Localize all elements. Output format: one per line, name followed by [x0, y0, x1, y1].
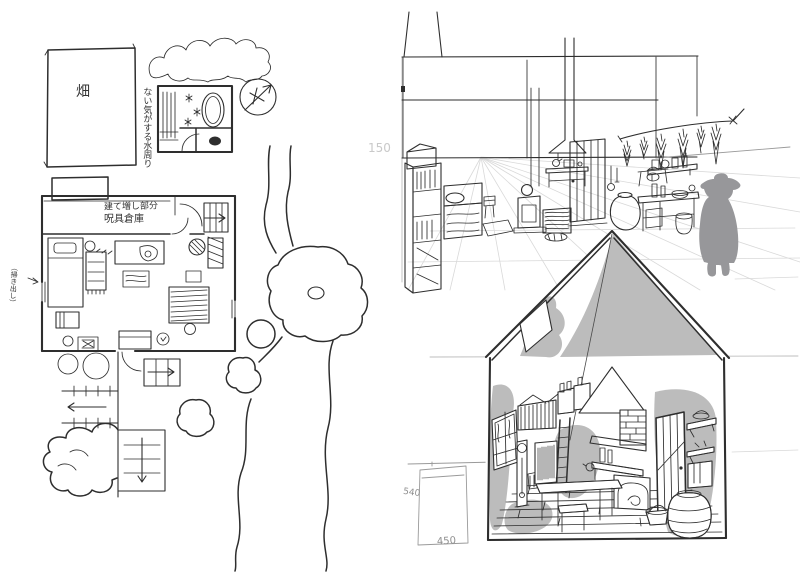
- furniture: [48, 237, 223, 351]
- sketch-page: 畑 ない気がする水周り 建て増し部分 呪具倉庫 （掃き出し） 150 540 4…: [0, 0, 800, 572]
- grandfather-clock: [515, 440, 529, 507]
- bush-scribble: [149, 38, 270, 82]
- floor-plan: [28, 38, 368, 571]
- workbench: [638, 184, 699, 234]
- door-width-dim: 450: [437, 535, 457, 548]
- bush-right-3: [247, 320, 275, 348]
- stool-with-books: [484, 196, 495, 218]
- bench: [119, 331, 151, 349]
- extension-note-line2: 呪具倉庫: [104, 214, 144, 226]
- towel-frame: [688, 461, 712, 488]
- tree-trunk-top: [308, 287, 324, 299]
- side-box: [186, 271, 201, 282]
- rug: [86, 252, 106, 294]
- bed: [48, 238, 83, 307]
- barrel: [668, 490, 711, 538]
- porch-arrow-right-icon: [148, 368, 174, 376]
- bush-cluster-left: [43, 423, 118, 496]
- toilet: [209, 137, 221, 146]
- trail-and-tree: [235, 146, 368, 571]
- north-compass-icon: [240, 79, 276, 115]
- window: [492, 410, 518, 470]
- bookshelf: [405, 144, 441, 293]
- kitchen-counter: [546, 153, 588, 187]
- pot-stand: [638, 167, 668, 186]
- stove-circle: [189, 239, 205, 255]
- bath-note: ない気がする水周り: [141, 87, 151, 192]
- field-plot: [44, 44, 136, 167]
- figure-silhouette: [699, 173, 740, 276]
- bush-right-2: [226, 358, 260, 393]
- desk-and-chair: [115, 241, 164, 264]
- bush-right-1: [177, 400, 214, 437]
- dimension-note-rect: [418, 462, 468, 545]
- firewood-pile: [543, 208, 571, 241]
- large-urn: [610, 193, 640, 231]
- fireplace: [614, 475, 650, 510]
- hanging-utensils: [608, 166, 620, 191]
- faint-dimension-note: 150: [368, 142, 391, 156]
- house-cutaway: [408, 229, 798, 545]
- corner-desk: [56, 312, 98, 351]
- extension-note-line1: 建て増し部分: [104, 202, 158, 213]
- herb-drying-line: [618, 109, 744, 170]
- back-door: [535, 441, 557, 484]
- room-structure: [401, 12, 790, 186]
- door-height-dim: 540: [402, 487, 420, 500]
- small-rug: [123, 271, 149, 287]
- sketch-canvas: [0, 0, 800, 572]
- low-table: [169, 287, 209, 335]
- wall-note-arrow-icon: [28, 278, 38, 284]
- bath-house: [158, 86, 232, 152]
- path-arrow-left-icon: [68, 403, 106, 411]
- futon-roll: [208, 237, 223, 268]
- lamp: [85, 241, 95, 251]
- field-label: 畑: [76, 84, 92, 100]
- tree-canopy: [267, 246, 367, 341]
- entry-steps: [180, 203, 228, 232]
- floor-rug: [483, 220, 513, 236]
- basket: [157, 333, 169, 345]
